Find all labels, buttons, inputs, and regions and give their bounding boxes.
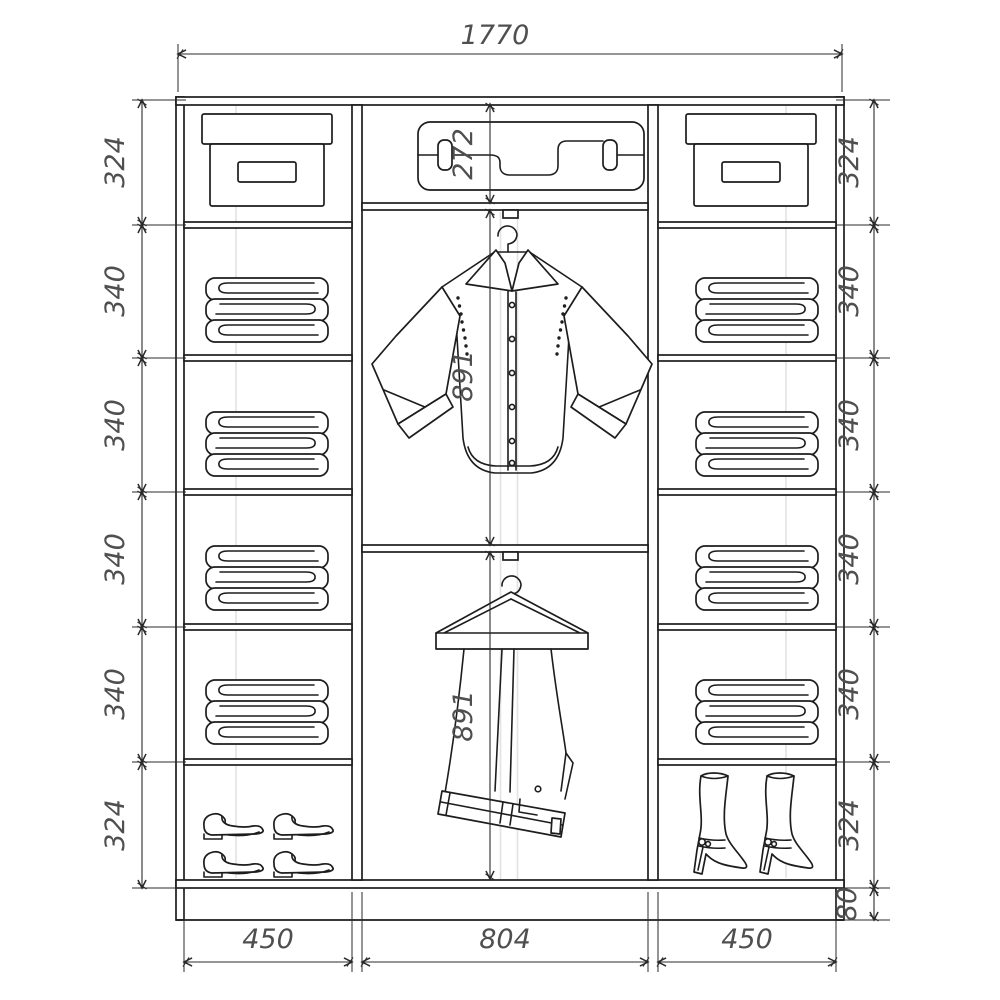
dim-lower-hanging-height: 891: [448, 690, 479, 742]
right-side-panel: [836, 97, 844, 920]
bottom-panel: [176, 880, 844, 888]
folded-clothes-icon: [696, 412, 818, 476]
top-panel: [176, 97, 844, 105]
folded-clothes-icon: [206, 278, 328, 342]
boot-icon: [694, 773, 747, 874]
right-partition: [648, 105, 658, 880]
boots-icon-group: [694, 773, 813, 874]
dim-overall-width: 1770: [461, 20, 530, 51]
dim-left-height-5: 340: [100, 668, 131, 720]
dim-right-height-1: 324: [834, 136, 865, 188]
storage-box-icon: [202, 114, 332, 206]
dim-left-height-2: 340: [100, 265, 131, 317]
hanging-rod-bracket: [503, 210, 518, 218]
shelf-panel: [658, 759, 836, 765]
dim-upper-hanging-height: 891: [448, 350, 479, 402]
wardrobe-structure: [176, 97, 844, 920]
dim-right-height-4: 340: [834, 533, 865, 585]
shelf-panel: [184, 759, 352, 765]
dim-right-height-5: 340: [834, 668, 865, 720]
shoe-icon: [204, 814, 263, 839]
dim-section-width-1: 450: [242, 924, 294, 955]
shelf-panel: [658, 624, 836, 630]
shoes-icon-group: [204, 814, 333, 877]
folded-clothes-icon: [206, 680, 328, 744]
shirt-icon: [372, 226, 652, 473]
left-partition: [352, 105, 362, 880]
dim-right-height-3: 340: [834, 399, 865, 451]
shelf-panel: [184, 222, 352, 228]
dim-right-height-6: 324: [834, 799, 865, 851]
dim-right-height-2: 340: [834, 265, 865, 317]
dim-left-height-6: 324: [100, 799, 131, 851]
boot-icon: [760, 773, 813, 874]
shelf-panel: [184, 624, 352, 630]
storage-box-icon: [686, 114, 816, 206]
dim-left-height-1: 324: [100, 136, 131, 188]
shelf-panel: [184, 355, 352, 361]
shelf-panel: [184, 489, 352, 495]
dim-section-width-2: 804: [479, 924, 531, 955]
folded-clothes-icon: [206, 412, 328, 476]
shelf-panel: [658, 489, 836, 495]
shoe-icon: [274, 852, 333, 877]
coat-hanger-icon: [436, 592, 588, 649]
shoe-icon: [204, 852, 263, 877]
wardrobe-elevation-drawing: 1770 324 340 340 340 340 324 324 340 340…: [0, 0, 1000, 1000]
dim-plinth-height: 80: [832, 887, 863, 921]
folded-clothes-icon: [696, 680, 818, 744]
left-side-panel: [176, 97, 184, 920]
wardrobe-drawing-page: 1770 324 340 340 340 340 324 324 340 340…: [0, 0, 1000, 1000]
shoe-icon: [274, 814, 333, 839]
hanging-rod-bracket: [503, 552, 518, 560]
shelf-panel: [658, 222, 836, 228]
dim-left-height-4: 340: [100, 533, 131, 585]
folded-clothes-icon: [206, 546, 328, 610]
dim-top-compartment-height: 272: [448, 128, 479, 180]
dim-left-height-3: 340: [100, 399, 131, 451]
middle-top-shelf: [362, 203, 648, 210]
folded-clothes-icon: [696, 278, 818, 342]
middle-divider-shelf: [362, 545, 648, 552]
dim-section-width-3: 450: [721, 924, 773, 955]
shelf-panel: [658, 355, 836, 361]
folded-clothes-icon: [696, 546, 818, 610]
